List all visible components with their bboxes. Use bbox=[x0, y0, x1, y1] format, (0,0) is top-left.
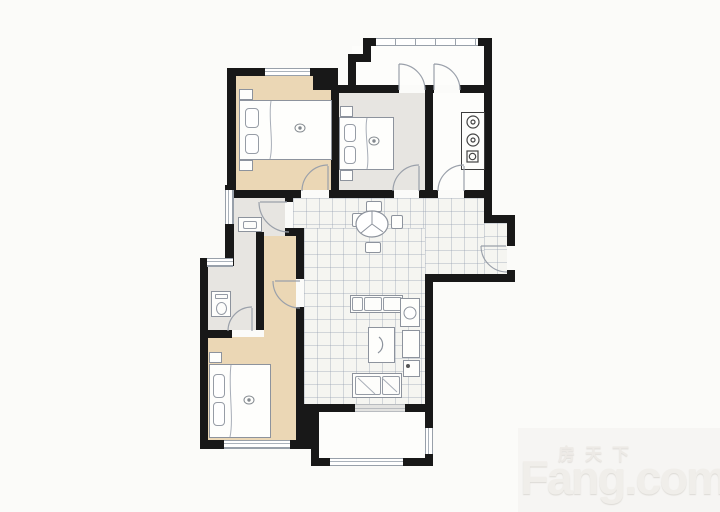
dining-chair bbox=[391, 215, 403, 229]
window bbox=[376, 38, 478, 46]
wall-segment bbox=[311, 412, 319, 466]
tv-cabinet-cell bbox=[355, 376, 381, 395]
pillow bbox=[245, 108, 259, 128]
wall-segment bbox=[296, 307, 304, 448]
watermark: 房天下 Fang.com bbox=[518, 428, 720, 512]
dining-chair bbox=[365, 242, 381, 253]
tv-cabinet-cell bbox=[382, 376, 400, 395]
pillow bbox=[245, 134, 259, 154]
bathroom-mid-floor bbox=[233, 232, 256, 266]
window bbox=[265, 68, 310, 76]
wall-segment bbox=[425, 85, 434, 93]
wall-segment bbox=[348, 54, 356, 93]
watermark-logo: Fang.com bbox=[520, 454, 720, 501]
double-bed bbox=[209, 364, 271, 438]
tv-cabinet bbox=[352, 373, 402, 398]
wall-segment bbox=[256, 232, 264, 330]
window bbox=[224, 440, 290, 449]
nightstand bbox=[340, 106, 353, 117]
wall-segment bbox=[507, 215, 515, 246]
balcony-sliding-door bbox=[355, 404, 405, 412]
wall-segment bbox=[419, 190, 438, 198]
wall-segment bbox=[227, 190, 301, 198]
nightstand bbox=[239, 160, 253, 171]
dining-chair bbox=[366, 201, 382, 212]
nightstand bbox=[239, 89, 253, 100]
wall-segment bbox=[425, 93, 433, 197]
wash-cabinet bbox=[238, 217, 262, 232]
wall-segment bbox=[227, 68, 236, 198]
wall-segment bbox=[200, 330, 232, 338]
wall-segment bbox=[285, 228, 304, 236]
side-table bbox=[402, 330, 420, 358]
window bbox=[225, 190, 234, 224]
hall-right-floor bbox=[425, 198, 484, 274]
nightstand bbox=[209, 352, 222, 363]
nightstand bbox=[340, 170, 353, 181]
pillow bbox=[213, 402, 225, 426]
bedroom-bottom-left-floor-upper bbox=[264, 236, 296, 337]
floor-plan-image: 房天下 Fang.com bbox=[0, 0, 720, 512]
side-table bbox=[403, 360, 420, 377]
dining-chair bbox=[352, 213, 364, 227]
window bbox=[207, 258, 233, 267]
wall-segment bbox=[425, 274, 515, 282]
entry-vestibule-floor bbox=[484, 223, 507, 274]
pillow bbox=[344, 124, 356, 142]
balcony-bottom-floor bbox=[319, 412, 425, 458]
sofa-cushion bbox=[364, 297, 382, 311]
double-bed bbox=[339, 117, 394, 170]
pillow bbox=[344, 146, 356, 164]
pillow bbox=[213, 374, 225, 398]
wall-segment bbox=[484, 38, 492, 223]
toilet-bowl bbox=[216, 302, 227, 315]
wash-basin bbox=[243, 221, 257, 229]
stove-counter bbox=[461, 112, 485, 170]
balcony-top-floor bbox=[352, 46, 484, 85]
toilet bbox=[211, 291, 231, 317]
coffee-table bbox=[368, 327, 395, 363]
sofa-cushion bbox=[352, 297, 363, 311]
double-bed bbox=[239, 100, 332, 160]
wall-segment bbox=[304, 412, 311, 448]
wall-segment bbox=[331, 85, 339, 198]
corner-seat bbox=[400, 298, 420, 327]
window bbox=[330, 458, 403, 466]
wall-segment bbox=[200, 258, 208, 448]
sofa bbox=[350, 295, 403, 313]
window bbox=[425, 428, 433, 454]
wall-segment bbox=[338, 190, 394, 198]
toilet-tank bbox=[215, 294, 228, 299]
